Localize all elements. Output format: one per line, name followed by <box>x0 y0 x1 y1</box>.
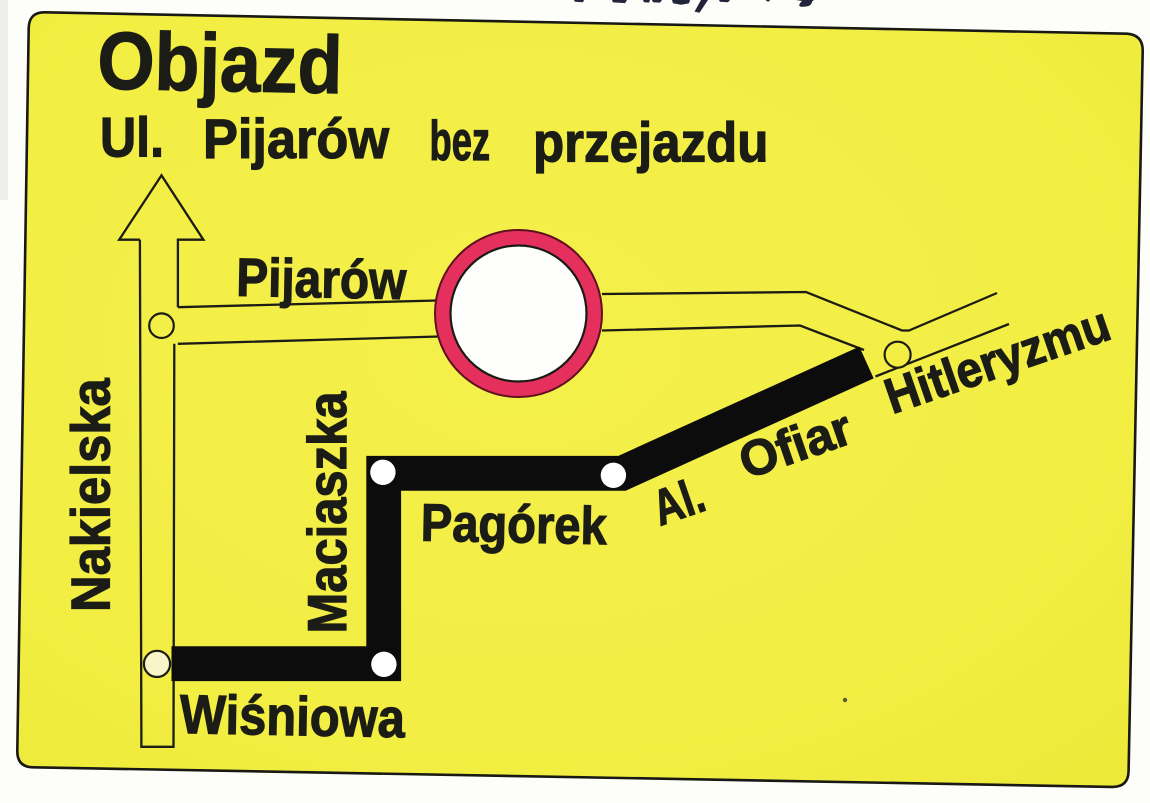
svg-text:bez: bez <box>430 109 491 172</box>
svg-text:Objazd: Objazd <box>97 16 344 112</box>
svg-text:Nakielska: Nakielska <box>60 378 122 612</box>
svg-text:Maciaszka: Maciaszka <box>296 391 358 634</box>
svg-text:Pijarów: Pijarów <box>203 107 389 170</box>
svg-text:Pijarów: Pijarów <box>236 248 408 311</box>
svg-text:Ul.: Ul. <box>100 105 164 168</box>
svg-text:Wiśniowa: Wiśniowa <box>179 683 406 749</box>
svg-text:Pagórek: Pagórek <box>420 494 608 557</box>
svg-text:przejazdu: przejazdu <box>533 111 768 174</box>
